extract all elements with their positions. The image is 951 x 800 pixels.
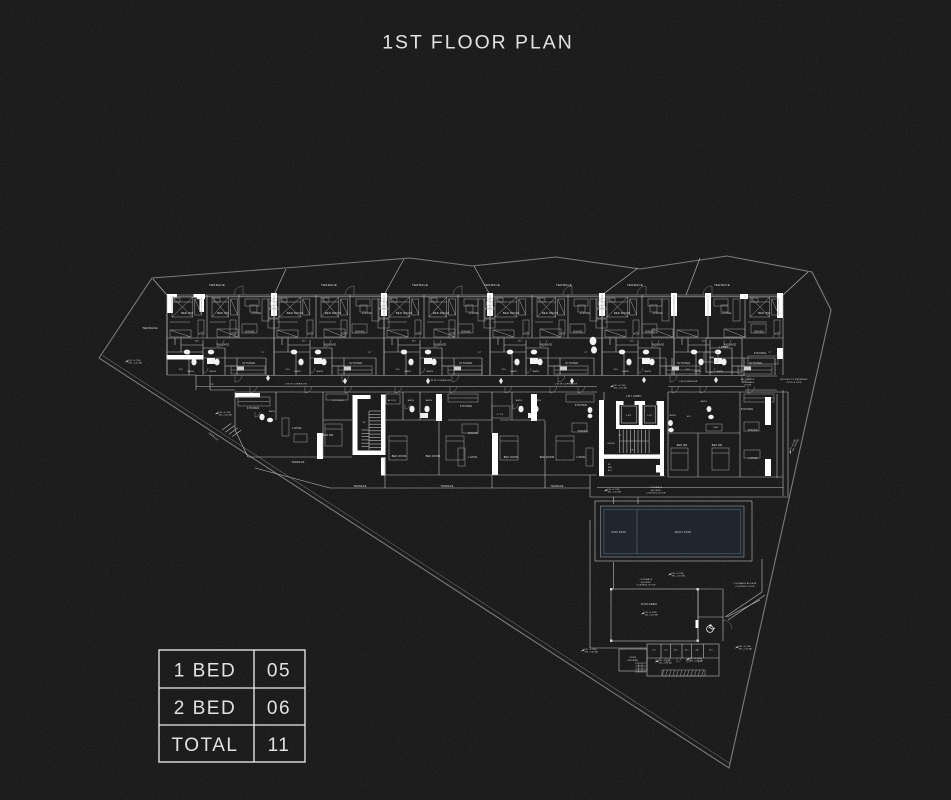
svg-text:W.D: W.D	[614, 369, 619, 371]
svg-text:M.D: M.D	[412, 341, 416, 343]
svg-text:BED ROOM: BED ROOM	[392, 456, 407, 458]
svg-text:BED RM: BED RM	[677, 445, 687, 447]
svg-text:SHOWER: SHOWER	[628, 660, 639, 662]
svg-text:KITCHEN: KITCHEN	[243, 362, 256, 365]
svg-text:PASSAGE: PASSAGE	[540, 344, 553, 347]
svg-text:ALCOV: ALCOV	[388, 399, 397, 402]
svg-text:O.T.S: O.T.S	[497, 414, 504, 416]
svg-text:DINING: DINING	[245, 332, 255, 334]
svg-text:TERRACE: TERRACE	[627, 283, 643, 287]
svg-text:POOL & GYM: POOL & GYM	[787, 382, 802, 384]
svg-text:SSL +4.55 MD: SSL +4.55 MD	[219, 415, 233, 417]
svg-text:BATH: BATH	[408, 399, 415, 402]
svg-text:LIVING: LIVING	[653, 311, 663, 315]
svg-text:BATH: BATH	[670, 414, 677, 417]
svg-text:BATH: BATH	[427, 370, 434, 373]
svg-text:ACCESS TO SWIMMING: ACCESS TO SWIMMING	[780, 378, 807, 381]
svg-text:1ST FLOOR PLAN: 1ST FLOOR PLAN	[382, 32, 573, 54]
svg-text:W.D: W.D	[396, 369, 401, 371]
svg-text:LOCKABLE ACCESS: LOCKABLE ACCESS	[734, 582, 757, 585]
svg-text:LIVING: LIVING	[468, 456, 477, 459]
svg-text:DINING: DINING	[461, 332, 471, 334]
svg-text:CONTROL DOOR: CONTROL DOOR	[735, 586, 755, 588]
svg-text:BATH: BATH	[210, 370, 217, 373]
svg-text:BATH: BATH	[295, 370, 302, 373]
svg-text:1 M W CORRIDOR: 1 M W CORRIDOR	[429, 380, 452, 382]
svg-text:05: 05	[267, 661, 291, 682]
svg-text:KITCHEN: KITCHEN	[566, 362, 579, 365]
svg-text:DINING: DINING	[355, 332, 365, 334]
svg-text:TERRACE: TERRACE	[353, 485, 366, 488]
svg-text:OPENABLE: OPENABLE	[742, 381, 755, 384]
svg-text:PASSAGE: PASSAGE	[434, 344, 447, 347]
svg-text:11: 11	[268, 735, 291, 756]
svg-text:UP: UP	[362, 422, 366, 424]
svg-text:M.D: M.D	[630, 341, 634, 343]
svg-text:PASSAGE: PASSAGE	[652, 344, 665, 347]
svg-text:HBD: HBD	[714, 427, 719, 429]
svg-text:W.D: W.D	[686, 369, 691, 371]
svg-text:BATH: BATH	[317, 370, 324, 373]
svg-text:BATH: BATH	[188, 370, 195, 373]
svg-text:W.C: W.C	[674, 650, 678, 652]
svg-text:KITCHEN: KITCHEN	[460, 405, 472, 408]
svg-text:M.D: M.D	[195, 341, 199, 343]
svg-text:OPEN: OPEN	[630, 657, 637, 659]
svg-text:TERRACE: TERRACE	[412, 283, 428, 287]
svg-text:SSL +4.55 MD: SSL +4.55 MD	[672, 576, 686, 578]
svg-text:W.D: W.D	[179, 369, 184, 371]
svg-text:LIVING: LIVING	[292, 427, 302, 430]
svg-text:AUTOMATIC: AUTOMATIC	[741, 378, 755, 381]
svg-text:06: 06	[267, 698, 291, 719]
svg-text:SSL +4.55 MD: SSL +4.55 MD	[585, 652, 599, 654]
svg-text:C.R: C.R	[664, 650, 668, 652]
svg-text:KITCHEN: KITCHEN	[754, 352, 766, 355]
svg-text:KITCHEN: KITCHEN	[750, 362, 763, 365]
svg-text:DINING: DINING	[468, 432, 478, 435]
svg-text:SSL +4.55 MD: SSL +4.55 MD	[739, 649, 753, 651]
svg-text:PASSAGE: PASSAGE	[324, 344, 337, 347]
svg-text:BATH: BATH	[511, 370, 518, 373]
svg-text:BATH: BATH	[623, 370, 630, 373]
svg-text:GYM AREA: GYM AREA	[641, 602, 658, 606]
svg-text:LOCKABLE: LOCKABLE	[640, 578, 653, 581]
svg-text:LIVING: LIVING	[469, 311, 479, 315]
svg-text:BED RM: BED RM	[758, 311, 770, 315]
svg-text:W.C: W.C	[685, 650, 689, 652]
svg-text:M.D: M.D	[687, 416, 692, 418]
svg-text:LIVING: LIVING	[748, 457, 757, 460]
svg-text:SSL +4.55 MD: SSL +4.55 MD	[659, 663, 673, 665]
svg-text:PASSAGE: PASSAGE	[217, 344, 230, 347]
svg-text:SSL +4.55 MD: SSL +4.55 MD	[690, 661, 704, 663]
svg-text:ADULT POOL: ADULT POOL	[675, 531, 692, 534]
svg-text:TERRACE: TERRACE	[550, 485, 563, 488]
svg-text:1 M W CORRIDOR: 1 M W CORRIDOR	[285, 383, 308, 385]
svg-text:KITCHEN: KITCHEN	[678, 362, 691, 365]
svg-text:BATH: BATH	[645, 370, 652, 373]
svg-text:DINING: DINING	[754, 332, 764, 334]
svg-text:CONTROL DOOR: CONTROL DOOR	[646, 493, 666, 495]
svg-text:DINING: DINING	[645, 332, 655, 334]
svg-text:BATH: BATH	[533, 370, 540, 373]
svg-text:DINING: DINING	[573, 332, 583, 334]
svg-text:SSL +4.55 MD: SSL +4.55 MD	[614, 388, 628, 390]
svg-text:1 BED: 1 BED	[174, 661, 236, 682]
svg-text:KITCHEN: KITCHEN	[741, 408, 753, 411]
svg-text:CONTROL DOOR: CONTROL DOOR	[636, 585, 656, 587]
svg-text:UP: UP	[618, 435, 622, 437]
svg-text:2 BED: 2 BED	[174, 698, 236, 719]
svg-text:BATH: BATH	[516, 399, 523, 402]
svg-text:TERRACE: TERRACE	[484, 283, 500, 287]
svg-text:TOTAL: TOTAL	[172, 735, 239, 756]
svg-text:LIVING: LIVING	[251, 311, 261, 315]
svg-text:KITCHEN: KITCHEN	[575, 404, 587, 407]
svg-text:BATH: BATH	[426, 399, 433, 402]
svg-text:HBD: HBD	[710, 357, 715, 359]
svg-text:SSL +4.55 MD: SSL +4.55 MD	[645, 615, 659, 617]
svg-text:BED RM: BED RM	[712, 445, 722, 447]
svg-text:LIVING: LIVING	[576, 456, 585, 459]
svg-text:BED ROOM: BED ROOM	[504, 457, 519, 459]
svg-text:KIDS POOL: KIDS POOL	[612, 532, 627, 534]
svg-text:BED ROOM: BED ROOM	[540, 457, 555, 459]
svg-text:BED RM: BED RM	[217, 311, 229, 315]
svg-text:DINING: DINING	[748, 429, 758, 432]
svg-text:M.D: M.D	[518, 341, 522, 343]
svg-text:TERRACE: TERRACE	[714, 283, 730, 287]
svg-text:1 M CORRIDOR: 1 M CORRIDOR	[678, 381, 697, 383]
svg-text:LOBBY: LOBBY	[719, 346, 729, 349]
svg-text:DOOR: DOOR	[745, 385, 752, 387]
svg-text:BATH: BATH	[269, 410, 275, 413]
svg-text:TERRACE: TERRACE	[142, 326, 158, 330]
svg-text:ACCESS: ACCESS	[641, 581, 651, 584]
svg-text:BATH: BATH	[695, 370, 702, 373]
svg-text:LIFT: LIFT	[647, 415, 653, 417]
svg-text:BED ROOM: BED ROOM	[426, 456, 441, 458]
svg-text:SSL +4.55 MD: SSL +4.55 MD	[608, 492, 622, 494]
svg-text:D.R: D.R	[652, 650, 656, 652]
svg-text:TERRACE: TERRACE	[321, 283, 337, 287]
svg-text:LOCKABLE: LOCKABLE	[650, 486, 663, 489]
svg-text:SSL +4.55 MD: SSL +4.55 MD	[129, 363, 143, 365]
svg-text:TERRACE: TERRACE	[440, 485, 453, 488]
svg-text:ALG: ALG	[608, 469, 612, 472]
svg-text:BED RM: BED RM	[323, 434, 334, 437]
svg-text:LIFT: LIFT	[626, 415, 632, 417]
svg-text:BATH: BATH	[405, 370, 412, 373]
svg-text:KITCHEN: KITCHEN	[247, 407, 259, 410]
svg-text:W.D: W.D	[502, 369, 507, 371]
svg-text:TERRACE: TERRACE	[291, 461, 304, 464]
svg-text:TR: TR	[210, 384, 213, 386]
svg-text:BATH: BATH	[717, 370, 724, 373]
svg-text:DINING: DINING	[578, 430, 588, 433]
svg-text:W.D: W.D	[286, 369, 291, 371]
svg-text:W.C: W.C	[709, 650, 713, 652]
svg-text:STAIR: STAIR	[607, 442, 614, 445]
svg-text:LIFT LOBBY: LIFT LOBBY	[626, 396, 642, 398]
svg-text:BATH: BATH	[701, 400, 708, 403]
svg-text:KITCHEN: KITCHEN	[460, 362, 473, 365]
svg-text:KITCHEN: KITCHEN	[332, 400, 344, 402]
svg-text:KITCHEN: KITCHEN	[350, 362, 363, 365]
svg-text:M.D: M.D	[302, 341, 306, 343]
svg-text:DN: DN	[630, 450, 634, 452]
svg-text:LIVING: LIVING	[721, 311, 731, 315]
svg-text:ACCESS: ACCESS	[651, 489, 661, 492]
svg-text:TERRACE: TERRACE	[209, 283, 225, 287]
svg-text:1 M W CORRIDOR: 1 M W CORRIDOR	[555, 383, 578, 385]
